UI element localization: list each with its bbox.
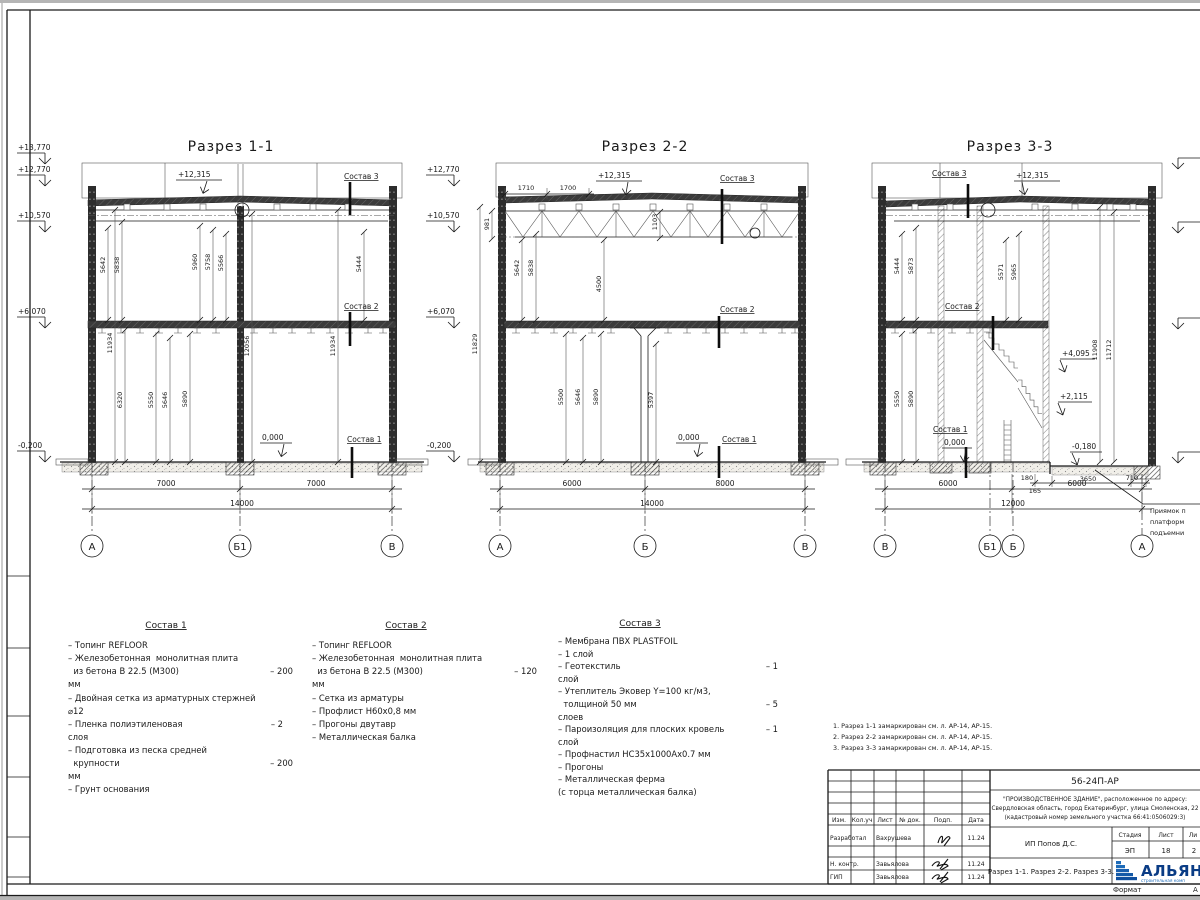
signature <box>932 872 948 883</box>
composition-value: – 200 <box>270 666 293 676</box>
section-1-1: Разрез 1-1 5642 5838 5960 5758 5566 5444… <box>56 139 428 557</box>
dim-label: 5965 <box>1010 264 1018 281</box>
dim-label: 165 <box>1029 487 1041 495</box>
axis-label: В <box>802 542 809 553</box>
axis-label: А <box>497 542 504 553</box>
dim-label: 5550 <box>893 391 901 408</box>
format-label: Формат <box>1113 886 1141 894</box>
dim-label: 5642 <box>513 260 521 277</box>
elevation-label: +10,570 <box>18 211 51 220</box>
tb-name: Завьялова <box>876 861 909 868</box>
tb-date: 11.24 <box>967 835 984 842</box>
dim-label: 8000 <box>715 479 734 488</box>
dim-label: 5838 <box>527 260 535 277</box>
composition-line: слоя <box>68 732 88 742</box>
roof-elevation-label: +12,315 <box>598 171 631 180</box>
tb-col-header: Изм. <box>832 817 846 824</box>
composition-2: Состав 2 – Топинг REFLOOR – Железобетонн… <box>312 621 537 742</box>
composition-line: ⌀12 <box>68 706 84 716</box>
sostav2-label: Состав 2 <box>945 302 980 311</box>
zero-level-label: 0,000 <box>678 433 700 442</box>
signature <box>938 836 950 846</box>
composition-line: – Геотекстиль <box>558 661 621 671</box>
dim-label: 180 <box>1021 474 1033 482</box>
composition-line: – Железобетонная монолитная плита <box>312 653 482 663</box>
level-mark-label: +4,095 <box>1062 349 1090 358</box>
signature <box>932 859 948 870</box>
roof-elevation-label: +12,315 <box>1016 171 1049 180</box>
sostav3-label: Состав 3 <box>720 174 755 183</box>
dim-label: 5960 <box>191 254 199 271</box>
composition-line: из бетона В 22.5 (М300) <box>68 666 179 676</box>
composition-title: Состав 3 <box>619 619 660 629</box>
doc-code: 56-24П-АР <box>1071 777 1119 787</box>
dim-label: 5550 <box>147 392 155 409</box>
composition-line: – Пленка полиэтиленовая <box>68 719 183 729</box>
format-value: А <box>1193 886 1198 894</box>
note-line: 3. Разрез 3-3 замаркирован см. л. АР-14,… <box>833 744 992 752</box>
composition-line: – Сетка из арматуры <box>312 693 404 703</box>
axis-label: Б1 <box>233 542 246 553</box>
sostav2-label: Состав 2 <box>344 302 379 311</box>
tb-col-header: Кол.уч <box>852 817 873 824</box>
composition-value: – 2 <box>271 719 283 729</box>
drawing-sheet: Формат А +13,770 +12,770 +10,570 +6,070 … <box>0 0 1200 900</box>
doc-title: Разрез 1-1. Разрез 2-2. Разрез 3-3. <box>988 868 1114 876</box>
roof-elevation-label: +12,315 <box>178 170 211 179</box>
project-desc: "ПРОИЗВОДСТВЕННОЕ ЗДАНИЕ", расположенное… <box>1003 797 1187 803</box>
composition-1: Состав 1 – Топинг REFLOOR – Железобетонн… <box>68 621 293 794</box>
level-mark-label: -0,180 <box>1072 442 1096 451</box>
elevation-label: +6,070 <box>427 307 455 316</box>
composition-line: – Профлист Н60х0,8 мм <box>312 706 416 716</box>
margin-elevation-marks: +13,770 +12,770 +10,570 +6,070 -0,200 <box>17 143 51 462</box>
client-name: ИП Попов Д.С. <box>1025 840 1077 848</box>
composition-line: мм <box>68 679 81 689</box>
note-line: 2. Разрез 2-2 замаркирован см. л. АР-14,… <box>833 733 992 741</box>
stage-value: ЭП <box>1125 847 1135 855</box>
composition-line: – Мембрана ПВХ PLASTFOIL <box>558 636 678 646</box>
section-2-elevation-marks: +12,770 +10,570 +6,070 -0,200 <box>426 165 460 462</box>
project-desc: Свердловская область, город Екатеринбург… <box>991 806 1198 812</box>
tb-role: ГИП <box>830 874 843 881</box>
axis-label: Б <box>642 542 649 553</box>
dim-label: 5890 <box>907 391 915 408</box>
dim-label: 11829 <box>471 334 479 355</box>
composition-line: – Подготовка из песка средней <box>68 745 207 755</box>
dim-label: 5642 <box>99 257 107 274</box>
dim-label: 5646 <box>161 392 169 409</box>
dim-label: 5444 <box>893 258 901 275</box>
composition-value: – 1 <box>766 724 778 734</box>
dim-label: 1710 <box>518 184 535 192</box>
composition-line: – 1 слой <box>558 649 593 659</box>
axis-label: В <box>882 542 889 553</box>
composition-line: – Пароизоляция для плоских кровель <box>558 724 724 734</box>
project-desc: (кадастровый номер земельного участка 66… <box>1005 814 1186 821</box>
composition-line: (с торца металлическая балка) <box>558 787 697 797</box>
dim-label: 11908 <box>1091 340 1099 361</box>
composition-title: Состав 1 <box>145 621 186 631</box>
dim-label: 7000 <box>156 479 175 488</box>
composition-line: – Топинг REFLOOR <box>68 640 148 650</box>
elevation-label: +10,570 <box>427 211 460 220</box>
dim-label: 14000 <box>230 499 254 508</box>
pit-note-line: платформ <box>1150 518 1184 526</box>
axis-label: А <box>1139 542 1146 553</box>
axis-circles: В Б1 Б А <box>874 535 1153 557</box>
dim-label: 11712 <box>1105 340 1113 361</box>
axis-label: Б1 <box>983 542 996 553</box>
composition-line: – Металлическая балка <box>312 732 416 742</box>
composition-line: – Грунт основания <box>68 784 150 794</box>
title-block: Изм. Кол.уч Лист № док. Подп. Дата Разра… <box>828 770 1200 884</box>
composition-line: – Металлическая ферма <box>558 774 665 784</box>
elevation-label: -0,200 <box>427 441 451 450</box>
tb-role: Разработал <box>830 835 867 842</box>
dim-label: 981 <box>483 218 491 230</box>
stage-label: Стадия <box>1118 832 1141 839</box>
tb-col-header: Подп. <box>934 817 952 824</box>
composition-value: – 200 <box>270 758 293 768</box>
dim-label: 11934 <box>106 333 114 354</box>
dim-label: 7000 <box>306 479 325 488</box>
composition-3: Состав 3 – Мембрана ПВХ PLASTFOIL – 1 сл… <box>558 619 778 797</box>
elevation-label: -0,200 <box>18 441 42 450</box>
staircase <box>984 332 1042 463</box>
sostav3-label: Состав 3 <box>344 172 379 181</box>
note-line: 1. Разрез 1-1 замаркирован см. л. АР-14,… <box>833 722 992 730</box>
composition-line: слой <box>558 674 579 684</box>
logo-subtext: строительная комп <box>1141 879 1185 884</box>
elevation-label: +12,770 <box>427 165 460 174</box>
elevation-label: +6,070 <box>18 307 46 316</box>
section-title: Разрез 2-2 <box>602 139 689 155</box>
composition-line: – Утеплитель Эковер Y=100 кг/м3, <box>558 686 711 696</box>
logo-text: АЛЬЯН <box>1141 862 1200 880</box>
composition-line: – Прогоны <box>558 762 603 772</box>
sostav2-label: Состав 2 <box>720 305 755 314</box>
dim-label: 710 <box>1126 474 1138 482</box>
dim-label: 5890 <box>592 389 600 406</box>
tb-col-header: Лист <box>877 817 893 824</box>
axis-label: В <box>389 542 396 553</box>
sostav1-label: Состав 1 <box>933 425 968 434</box>
sostav3-label: Состав 3 <box>932 169 967 178</box>
dim-label: 6000 <box>1067 479 1086 488</box>
elevation-label: +12,770 <box>18 165 51 174</box>
composition-line: слой <box>558 737 579 747</box>
axis-circles: А Б1 В <box>81 535 403 557</box>
axis-label: Б <box>1010 542 1017 553</box>
dim-label: 5397 <box>647 392 655 409</box>
zero-level-label: 0,000 <box>262 433 284 442</box>
tb-col-header: № док. <box>899 817 921 824</box>
section-2-2: Разрез 2-2 +12,770 +10,570 +6,070 -0,200… <box>426 139 838 557</box>
composition-line: – Железобетонная монолитная плита <box>68 653 238 663</box>
composition-line: – Топинг REFLOOR <box>312 640 392 650</box>
composition-line: крупности <box>68 758 120 768</box>
notes: 1. Разрез 1-1 замаркирован см. л. АР-14,… <box>833 722 992 752</box>
composition-line: из бетона В 22.5 (М300) <box>312 666 423 676</box>
sheet-value: 18 <box>1162 847 1171 855</box>
tb-col-header: Дата <box>968 817 984 824</box>
zero-level-label: 0,000 <box>944 438 966 447</box>
composition-line: мм <box>68 771 81 781</box>
composition-value: – 5 <box>766 699 778 709</box>
tb-date: 11.24 <box>967 874 984 881</box>
sheets-value: 2 <box>1192 847 1196 855</box>
dim-label: 1103 <box>651 214 659 231</box>
composition-line: – Прогоны двутавр <box>312 719 396 729</box>
dim-label: 5566 <box>217 255 225 272</box>
dim-label: 1700 <box>560 184 577 192</box>
dim-label: 5758 <box>204 254 212 271</box>
level-mark-label: +2,115 <box>1060 392 1088 401</box>
composition-line: – Двойная сетка из арматурных стержней <box>68 693 256 703</box>
pit-note-line: подъемни <box>1150 529 1184 537</box>
elevation-label: +13,770 <box>18 143 51 152</box>
section-title: Разрез 3-3 <box>967 139 1054 155</box>
dim-label: 5500 <box>557 389 565 406</box>
axis-circles: А Б В <box>489 535 816 557</box>
tb-name: Завьялова <box>876 874 909 881</box>
pit-note-line: Приямок п <box>1150 507 1186 515</box>
composition-value: – 1 <box>766 661 778 671</box>
dim-label: 5571 <box>997 264 1005 281</box>
section-3-3: Разрез 3-3 5444 5873 5571 5965 11908 117… <box>846 139 1200 557</box>
tb-role: Н. контр. <box>830 861 859 868</box>
composition-title: Состав 2 <box>385 621 426 631</box>
dim-label: 6320 <box>116 392 124 409</box>
dim-label: 5646 <box>574 389 582 406</box>
dim-label: 4500 <box>595 276 603 293</box>
dim-label: 12056 <box>243 336 251 357</box>
sostav1-label: Состав 1 <box>347 435 382 444</box>
sostav1-label: Состав 1 <box>722 435 757 444</box>
dim-label: 6000 <box>562 479 581 488</box>
dim-label: 11934 <box>329 336 337 357</box>
composition-line: мм <box>312 679 325 689</box>
composition-line: слоев <box>558 712 583 722</box>
sheets-label: Ли <box>1189 832 1198 839</box>
drawing-canvas: Формат А +13,770 +12,770 +10,570 +6,070 … <box>0 0 1200 900</box>
dim-label: 5444 <box>355 256 363 273</box>
dim-label: 12000 <box>1001 499 1025 508</box>
dim-label: 5838 <box>113 257 121 274</box>
tb-name: Вахрушева <box>876 835 911 842</box>
dim-label: 6000 <box>938 479 957 488</box>
alliance-logo-icon <box>1116 861 1137 880</box>
composition-line: толщиной 50 мм <box>558 699 637 709</box>
composition-line: – Профнастил НС35х1000Ах0.7 мм <box>558 749 711 759</box>
dim-label: 14000 <box>640 499 664 508</box>
sheet-label: Лист <box>1158 832 1174 839</box>
dim-label: 5873 <box>907 258 915 275</box>
tb-date: 11.24 <box>967 861 984 868</box>
composition-value: – 120 <box>514 666 537 676</box>
section-title: Разрез 1-1 <box>188 139 275 155</box>
axis-label: А <box>89 542 96 553</box>
dim-label: 5890 <box>181 391 189 408</box>
